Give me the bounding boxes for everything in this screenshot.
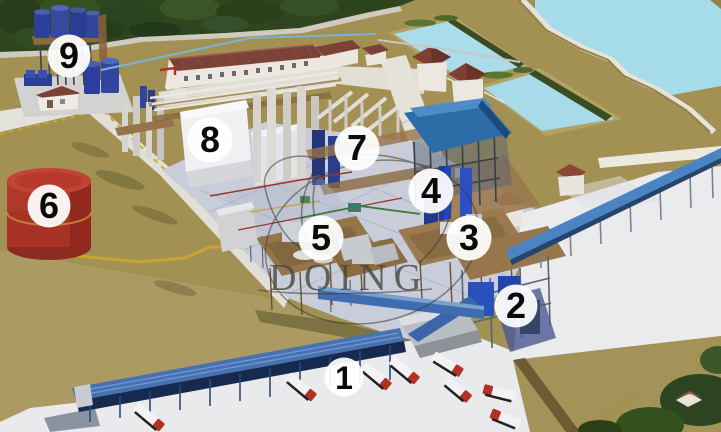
svg-text:9: 9 <box>59 35 79 76</box>
svg-text:8: 8 <box>200 119 220 160</box>
svg-text:5: 5 <box>311 217 331 258</box>
svg-text:7: 7 <box>347 127 367 168</box>
svg-text:2: 2 <box>506 285 526 326</box>
svg-text:DOING: DOING <box>269 257 429 299</box>
svg-text:3: 3 <box>459 217 479 258</box>
svg-text:4: 4 <box>421 170 441 211</box>
svg-text:6: 6 <box>39 185 59 226</box>
svg-text:1: 1 <box>335 360 353 396</box>
